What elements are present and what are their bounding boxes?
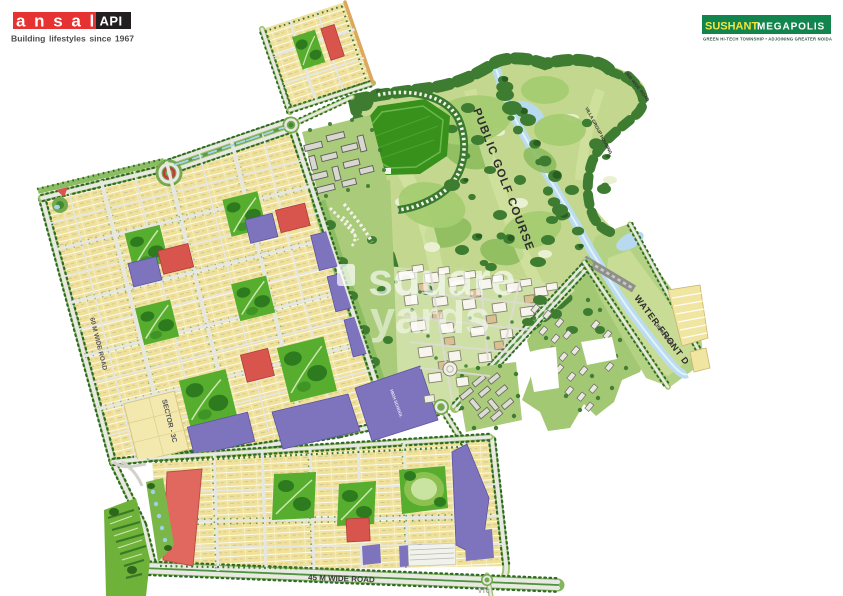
svg-text:API: API [100, 14, 123, 29]
svg-text:SUSHANT: SUSHANT [705, 21, 758, 33]
svg-text:yards: yards [370, 292, 490, 343]
svg-text:ansal: ansal [16, 12, 103, 31]
svg-text:GREEN HI-TECH TOWNSHIP • ADJ: GREEN HI-TECH TOWNSHIP • ADJOINING GREAT… [703, 37, 832, 42]
svg-text:VTC: VTC [478, 589, 491, 595]
svg-text:MEGAPOLIS: MEGAPOLIS [757, 22, 825, 33]
svg-text:Building lifestyles since 1967: Building lifestyles since 1967 [11, 34, 134, 44]
